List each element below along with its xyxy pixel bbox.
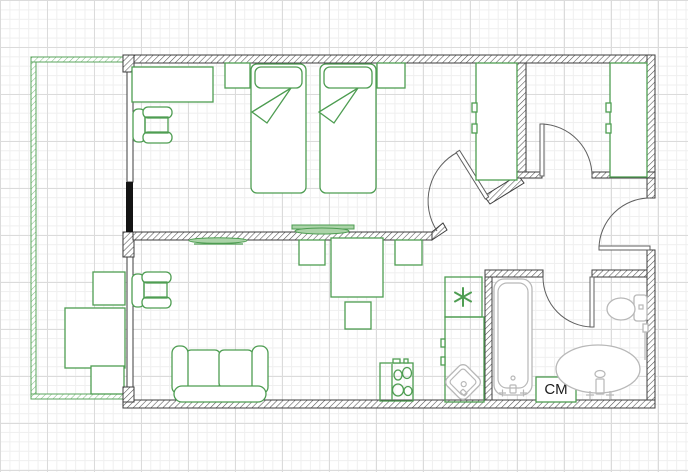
- sofa[interactable]: [172, 346, 268, 402]
- wall-divider-bedroom-living[interactable]: [133, 232, 432, 240]
- bathroom-fixtures: СМ: [494, 279, 648, 402]
- bedroom-nightstand-2[interactable]: [377, 63, 405, 88]
- sofa-cushion: [219, 350, 253, 388]
- balcony-chair-top[interactable]: [93, 272, 125, 305]
- sofa-cushion: [186, 350, 220, 388]
- bathtub[interactable]: [494, 279, 532, 397]
- bedroom-nightstand-1[interactable]: [225, 63, 250, 88]
- door-storage-leaf[interactable]: [540, 124, 544, 176]
- floorplan-svg: СМ: [0, 0, 688, 472]
- wall-top[interactable]: [123, 55, 655, 63]
- door-entrance-arc: [599, 198, 650, 248]
- dining-chair-left[interactable]: [299, 240, 325, 265]
- balcony-wall-left[interactable]: [31, 57, 36, 399]
- wall-left-bottom-block[interactable]: [123, 387, 134, 402]
- stove-knob: [393, 359, 400, 363]
- door-bathroom-leaf[interactable]: [590, 277, 594, 327]
- balcony-chair-bottom[interactable]: [91, 366, 124, 394]
- sofa-back: [174, 386, 266, 402]
- living-room-armchair[interactable]: [132, 272, 171, 308]
- door-bedroom-arc: [428, 152, 458, 231]
- counter-handle: [441, 357, 445, 365]
- wardrobe-handle: [472, 103, 477, 112]
- wall-black-segment[interactable]: [126, 182, 133, 232]
- bedroom-wardrobe[interactable]: [472, 63, 517, 180]
- bedroom-desk[interactable]: [132, 67, 213, 102]
- burner: [404, 387, 412, 396]
- wall-bathroom-left[interactable]: [485, 270, 492, 400]
- toilet-bowl: [607, 298, 635, 320]
- door-bathroom[interactable]: [543, 277, 594, 327]
- balcony-wall-bottom[interactable]: [31, 394, 127, 399]
- burner: [394, 370, 402, 380]
- wardrobe-handle: [472, 124, 477, 133]
- fridge[interactable]: [445, 277, 482, 317]
- toilet-tank: [634, 295, 647, 321]
- toilet[interactable]: [607, 295, 647, 321]
- bed-2[interactable]: [319, 64, 376, 193]
- living-room-tv[interactable]: [189, 238, 247, 244]
- wall-bathroom-top-left[interactable]: [485, 270, 543, 277]
- burner: [393, 384, 404, 396]
- wall-bedroom-storage[interactable]: [517, 63, 526, 178]
- door-entrance-leaf[interactable]: [599, 246, 650, 250]
- windows: [126, 72, 133, 387]
- counter-handle: [441, 339, 445, 347]
- bedroom-armchair[interactable]: [133, 107, 172, 143]
- balcony[interactable]: [31, 57, 127, 399]
- wall-left-divider-block[interactable]: [123, 232, 134, 257]
- stove[interactable]: [380, 359, 413, 401]
- door-bathroom-arc: [543, 277, 592, 327]
- storage-room-furniture: [606, 63, 647, 177]
- dining-table[interactable]: [331, 238, 383, 297]
- wall-storage-bottom-left[interactable]: [517, 172, 542, 178]
- balcony-table[interactable]: [65, 308, 125, 368]
- door-storage-room[interactable]: [540, 124, 592, 176]
- living-room-furniture: [132, 238, 422, 402]
- kitchen: [380, 277, 484, 402]
- wardrobe-handle: [606, 124, 611, 133]
- door-storage-arc: [542, 124, 592, 176]
- snowflake-asterisk-icon: [455, 288, 471, 306]
- dining-chair-bottom[interactable]: [345, 302, 371, 329]
- burner: [403, 368, 412, 379]
- balcony-wall-top[interactable]: [31, 57, 127, 62]
- bedroom-furniture: [132, 63, 517, 234]
- stove-knob: [404, 359, 408, 363]
- wall-bathroom-top-right[interactable]: [592, 270, 647, 277]
- door-entrance[interactable]: [599, 198, 650, 250]
- bedroom-tv[interactable]: [292, 225, 354, 234]
- bed-1[interactable]: [251, 64, 306, 193]
- storage-wardrobe[interactable]: [606, 63, 647, 177]
- floorplan-canvas: СМ: [0, 0, 688, 472]
- dining-chair-right[interactable]: [395, 240, 422, 265]
- wardrobe-handle: [606, 103, 611, 112]
- kitchen-sink[interactable]: [443, 362, 483, 402]
